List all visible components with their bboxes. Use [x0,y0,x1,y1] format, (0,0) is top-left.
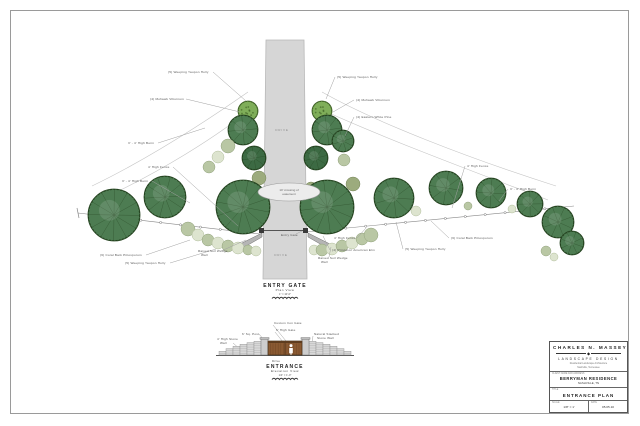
svg-text:Drive: Drive [272,359,280,363]
svg-text:Wall: Wall [201,253,208,257]
svg-text:Wall: Wall [321,260,328,264]
svg-text:6' Sq. Post: 6' Sq. Post [242,332,259,336]
client-label: Client Name and Address [552,373,625,375]
tree-symbol [88,189,140,241]
firm-field: Landscape Design [553,357,624,361]
tree-symbol [429,171,463,205]
svg-text:DRIVE: DRIVE [275,128,288,132]
client-city: Nashville, TN [552,381,625,385]
svg-text:(4) Eastern White Pine: (4) Eastern White Pine [356,115,392,119]
drawing-sheet: DRIVEDRIVE10' crossing ofeasement(5) Wee… [0,0,640,426]
tree-symbol [251,246,261,256]
tree-symbol [464,202,472,210]
diamond-icon: ◆ [587,352,590,356]
svg-text:Entry Gate: Entry Gate [281,233,298,237]
scale-label: Scale [552,402,586,404]
svg-text:(5) Weeping Yaupon Holly: (5) Weeping Yaupon Holly [405,247,446,251]
tree-symbol [346,177,360,191]
svg-text:(5) Weeping Yaupon Holly: (5) Weeping Yaupon Holly [337,75,378,79]
elevation-view-title: ENTRANCEElevation View1/4" = 1'-0" [266,364,303,380]
tree-symbol [508,205,516,213]
easement-note: 10' crossing ofeasement [258,183,320,201]
plant-label: (5) Weeping Yaupon Holly [396,222,446,251]
scale-cell: Scale 1/8" = 1' [550,401,588,413]
svg-text:Wall: Wall [220,341,227,345]
firm-subline-1: Residential Landscape Architecture [553,362,624,365]
plant-label: 3' - 4' High Berm [128,128,205,145]
firm-header: Charles N. Massey ◆ Landscape Design Res… [550,342,627,372]
date-value: 05.05.10 [591,405,625,409]
svg-text:3' - 4' High Berm: 3' - 4' High Berm [128,141,154,145]
scale-value: 1/8" = 1' [552,405,586,409]
tree-symbol [411,206,421,216]
driveway: DRIVEDRIVE [263,40,307,279]
svg-text:(4) Princeton American Elm: (4) Princeton American Elm [332,248,375,252]
tree-symbol [374,178,414,218]
svg-text:1/4" = 1'-0": 1/4" = 1'-0" [279,373,292,377]
tree-symbol [560,231,584,255]
firm-rule: ◆ [556,352,621,356]
firm-subline-2: Nashville, Tennessee [553,366,624,369]
svg-text:(6) Coral Bark Pittosporum: (6) Coral Bark Pittosporum [451,236,493,240]
sheet-title: Entrance Plan [552,393,625,398]
plant-label: Drive [272,359,280,363]
tree-symbol [242,146,266,170]
plant-label: (4) Eastern White Pine [345,115,392,136]
tree-symbol [364,228,378,242]
tree-symbol [304,146,328,170]
svg-text:(4) Mohawk Viburnum: (4) Mohawk Viburnum [150,97,184,101]
plant-label: (4) Mohawk Viburnum [333,98,390,112]
svg-text:(6) Coral Bark Pittosporum: (6) Coral Bark Pittosporum [100,253,142,257]
svg-text:Stone Wall: Stone Wall [317,336,334,340]
tree-symbol [338,154,350,166]
svg-text:Custom Iron Gate: Custom Iron Gate [274,321,302,325]
svg-text:(5) Weeping Yaupon Holly: (5) Weeping Yaupon Holly [125,261,166,265]
tree-symbol [332,130,354,152]
tree-symbol [550,253,558,261]
svg-text:3' - 4' High Berm: 3' - 4' High Berm [510,187,536,191]
tree-symbol [203,161,215,173]
svg-text:6' High Gate: 6' High Gate [276,328,296,332]
site-plan-drawing: DRIVEDRIVE10' crossing ofeasement(5) Wee… [0,0,640,426]
svg-text:3' - 4' High Berm: 3' - 4' High Berm [122,179,148,183]
svg-text:Plan View: Plan View [276,288,295,292]
tree-symbol [476,178,506,208]
firm-name: Charles N. Massey [553,345,624,350]
svg-text:Elevation View: Elevation View [271,369,299,373]
plan-view-title: ENTRY GATEPlan View1" = 10'-0" [263,283,307,299]
tree-symbol [221,139,235,153]
tree-symbol [541,246,551,256]
svg-text:easement: easement [282,192,295,196]
gate-post [261,339,268,355]
svg-text:DRIVE: DRIVE [274,253,287,257]
date-cell: Date 05.05.10 [588,401,627,413]
title-label: Title [552,389,625,391]
date-label: Date [591,402,625,404]
svg-text:1" = 10'-0": 1" = 10'-0" [279,292,291,296]
tree-symbol [232,242,244,254]
plant-label: (4) Mohawk Viburnum [150,97,240,112]
svg-text:4' High Fence: 4' High Fence [334,236,356,240]
figure-silhouette [290,344,293,347]
svg-text:4' High Fence: 4' High Fence [148,165,170,169]
plant-label: (5) Weeping Yaupon Holly [326,75,378,99]
svg-text:(4) Mohawk Viburnum: (4) Mohawk Viburnum [356,98,390,102]
tree-symbol [517,191,543,217]
plant-label: (6) Coral Bark Pittosporum [100,240,190,257]
gate-post [302,339,309,355]
title-block: Charles N. Massey ◆ Landscape Design Res… [549,341,628,413]
sheet-title-section: Title Entrance Plan [550,388,627,401]
scale-date-row: Scale 1/8" = 1' Date 05.05.10 [550,401,627,413]
tree-symbol [212,151,224,163]
plant-label: (6) Coral Bark Pittosporum [431,221,493,240]
svg-text:(5) Weeping Yaupon Holly: (5) Weeping Yaupon Holly [168,70,209,74]
client-section: Client Name and Address Berryman Residen… [550,372,627,388]
svg-text:4' High Fence: 4' High Fence [467,164,489,168]
